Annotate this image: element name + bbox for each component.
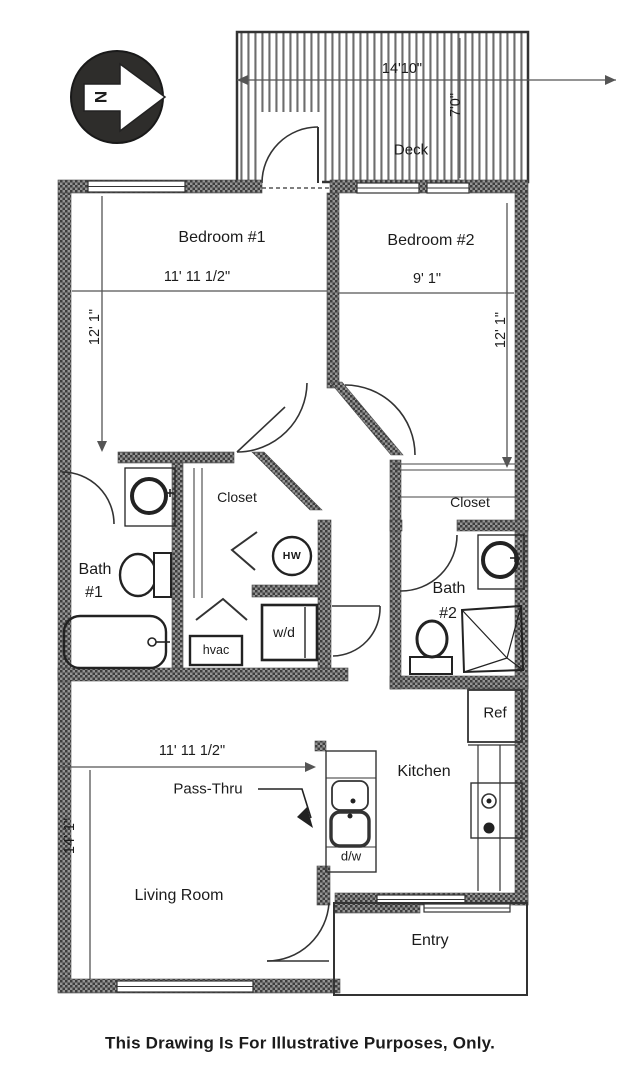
bedroom2-width-dimension: 9' 1" [413, 272, 441, 287]
living-depth-dimension: 14' 1" [63, 818, 78, 854]
closet-right-label: Closet [450, 495, 490, 509]
living-width-dimension: 11' 11 1/2" [159, 744, 225, 759]
kitchen-label: Kitchen [397, 764, 450, 780]
window-bedroom2-b [427, 183, 469, 193]
compass-north-label: N [93, 91, 110, 103]
bathtub-icon [64, 616, 166, 668]
bedroom2-label: Bedroom #2 [387, 233, 474, 249]
entry-label: Entry [411, 933, 448, 949]
bath1-label: Bath [79, 562, 112, 578]
deck-area [237, 32, 528, 188]
washer-dryer-label: w/d [273, 625, 295, 639]
closet-bifold-door [232, 532, 257, 570]
toilet-icon [417, 621, 447, 657]
bath2-fixtures [410, 535, 524, 674]
water-heater-label: HW [283, 551, 302, 562]
hvac-label: hvac [203, 644, 229, 657]
passthru-label: Pass-Thru [173, 782, 242, 797]
toilet-tank [154, 553, 171, 597]
north-arrow-icon [71, 51, 165, 143]
toilet-icon [120, 554, 156, 596]
drawing-disclaimer-caption: This Drawing Is For Illustrative Purpose… [105, 1035, 495, 1052]
dishwasher-label: d/w [341, 850, 361, 863]
living-room-label: Living Room [135, 888, 224, 904]
bedroom1-depth-dimension: 12' 1" [88, 309, 103, 345]
toilet-tank [410, 657, 452, 674]
window-bedroom1 [88, 181, 185, 192]
angled-wall [330, 382, 403, 455]
window-bedroom2-a [357, 183, 419, 193]
floor-plan-page: N 14'10" 7'0" Deck Bedroom #1 11' 11 1/2… [0, 0, 624, 1080]
deck-label: Deck [394, 143, 428, 158]
sink-icon [132, 479, 166, 513]
deck-depth-dimension: 7'0" [449, 93, 464, 117]
deck-width-dimension: 14'10" [382, 62, 422, 77]
window-entry [424, 904, 510, 912]
stove-icon [471, 783, 522, 838]
tub-faucet-icon [148, 638, 156, 646]
entry-outline [334, 903, 527, 995]
sink-icon [483, 543, 517, 577]
kitchen-sink-icon [332, 781, 368, 810]
floor-plan-drawing [0, 0, 624, 1080]
hvac-bifold-door [196, 599, 247, 620]
bedroom1-width-dimension: 11' 11 1/2" [164, 270, 230, 285]
entry-door-arc [267, 903, 329, 961]
closet-left-label: Closet [217, 490, 257, 504]
bath2-number-label: #2 [439, 606, 457, 622]
bath1-number-label: #1 [85, 585, 103, 601]
bath2-label: Bath [433, 581, 466, 597]
fridge-label: Ref [483, 706, 506, 721]
bedroom1-door-leaf [237, 407, 285, 452]
window-living [117, 981, 253, 992]
angled-wall [252, 452, 322, 510]
bedroom1-label: Bedroom #1 [178, 230, 265, 246]
bedroom2-depth-dimension: 12' 1" [494, 312, 509, 348]
bedroom2-door-arc [345, 385, 415, 455]
laundry-door-arc [333, 606, 380, 656]
burner-icon [484, 823, 495, 834]
